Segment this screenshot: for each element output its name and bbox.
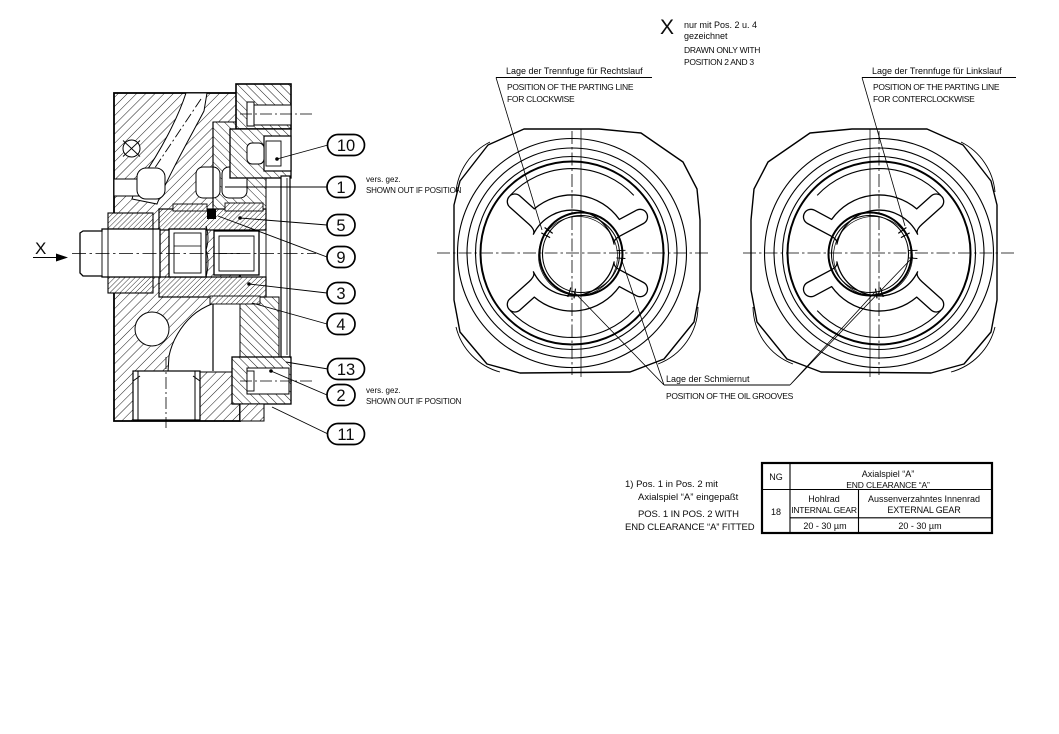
svg-text:X: X: [35, 239, 46, 258]
svg-text:POS. 1 IN POS. 2 WITH: POS. 1 IN POS. 2 WITH: [638, 509, 739, 520]
svg-text:INTERNAL GEAR: INTERNAL GEAR: [791, 505, 857, 515]
svg-text:FOR CONTERCLOCKWISE: FOR CONTERCLOCKWISE: [873, 94, 975, 104]
svg-text:vers. gez.: vers. gez.: [366, 175, 401, 184]
svg-text:20 - 30 µm: 20 - 30 µm: [898, 521, 941, 531]
svg-text:Axialspiel “A” eingepaßt: Axialspiel “A” eingepaßt: [638, 492, 739, 503]
svg-text:NG: NG: [769, 472, 783, 482]
svg-text:1) Pos. 1 in Pos. 2 mit: 1) Pos. 1 in Pos. 2 mit: [625, 479, 718, 490]
svg-text:Aussenverzahntes Innenrad: Aussenverzahntes Innenrad: [868, 494, 980, 504]
svg-text:18: 18: [771, 507, 781, 517]
svg-text:Lage der Trennfuge für Rechtsl: Lage der Trennfuge für Rechtslauf: [506, 66, 643, 76]
svg-text:DRAWN ONLY WITH: DRAWN ONLY WITH: [684, 45, 760, 55]
svg-text:POSITION OF THE OIL GROOVES: POSITION OF THE OIL GROOVES: [666, 391, 794, 401]
svg-text:3: 3: [336, 285, 345, 303]
svg-text:20 - 30 µm: 20 - 30 µm: [803, 521, 846, 531]
svg-text:END CLEARANCE “A”: END CLEARANCE “A”: [846, 480, 930, 490]
svg-text:Hohlrad: Hohlrad: [808, 494, 840, 504]
svg-text:4: 4: [336, 316, 345, 334]
svg-text:10: 10: [337, 137, 355, 155]
svg-text:SHOWN OUT IF POSITION: SHOWN OUT IF POSITION: [366, 186, 462, 195]
svg-text:nur mit Pos. 2 u. 4: nur mit Pos. 2 u. 4: [684, 20, 757, 30]
svg-text:Lage der Schmiernut: Lage der Schmiernut: [666, 374, 750, 384]
svg-text:POSITION 2 AND 3: POSITION 2 AND 3: [684, 57, 754, 67]
svg-text:13: 13: [337, 361, 355, 379]
svg-text:Lage der Trennfuge für Linksla: Lage der Trennfuge für Linkslauf: [872, 66, 1002, 76]
svg-text:X: X: [660, 16, 674, 39]
svg-text:POSITION OF THE PARTING LINE: POSITION OF THE PARTING LINE: [507, 82, 634, 92]
svg-text:9: 9: [336, 249, 345, 267]
svg-text:Axialspiel “A”: Axialspiel “A”: [862, 469, 915, 479]
svg-text:FOR CLOCKWISE: FOR CLOCKWISE: [507, 94, 575, 104]
svg-text:1: 1: [336, 179, 345, 197]
svg-text:gezeichnet: gezeichnet: [684, 31, 728, 41]
svg-text:2: 2: [336, 387, 345, 405]
svg-text:vers. gez.: vers. gez.: [366, 386, 401, 395]
svg-text:5: 5: [336, 217, 345, 235]
svg-text:POSITION OF THE PARTING LINE: POSITION OF THE PARTING LINE: [873, 82, 1000, 92]
svg-text:SHOWN OUT IF POSITION: SHOWN OUT IF POSITION: [366, 397, 462, 406]
svg-text:EXTERNAL GEAR: EXTERNAL GEAR: [887, 505, 961, 515]
svg-text:11: 11: [337, 426, 354, 444]
svg-text:END CLEARANCE “A” FITTED: END CLEARANCE “A” FITTED: [625, 522, 755, 533]
